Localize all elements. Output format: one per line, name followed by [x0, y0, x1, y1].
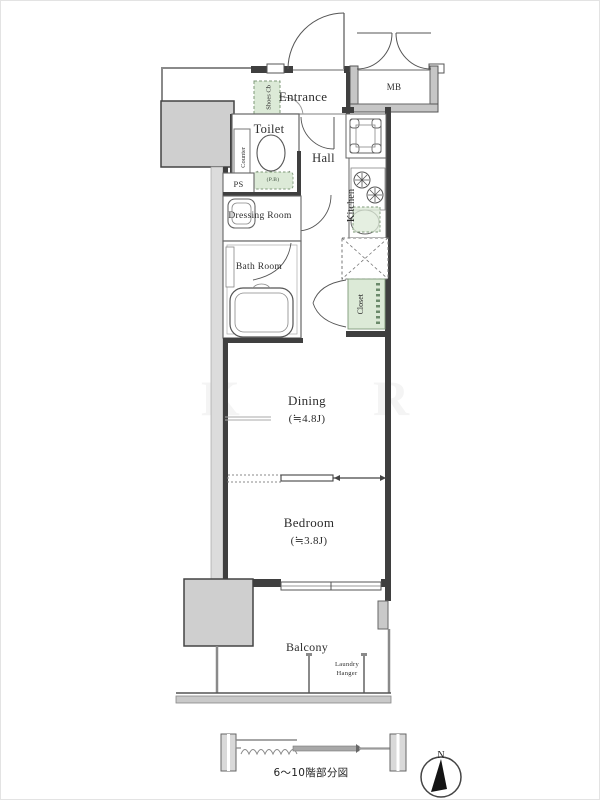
mb-door-arc-right — [396, 33, 431, 69]
hall-door-arc — [297, 195, 331, 231]
pillar-bottom-left — [184, 579, 253, 646]
stove-burner-2-grate — [368, 188, 382, 202]
detail-gray-bar — [293, 746, 359, 751]
toilet-bowl — [257, 135, 285, 171]
floor-plan-canvas: K R — [0, 0, 600, 800]
balcony-label: Balcony — [267, 640, 347, 655]
balcony-wall-stub — [378, 601, 388, 629]
dressing-room-label: Dressing Room — [228, 198, 292, 234]
toilet-pipe-box-label: (P.B) — [253, 174, 293, 187]
washer-pan-foot-bl — [350, 144, 359, 153]
hall-label: Hall — [301, 151, 346, 166]
hall-dressing-wall — [223, 192, 301, 196]
washer-pan-foot-tl — [350, 119, 359, 128]
bathtub — [230, 288, 293, 337]
balcony-railing-bar — [176, 696, 391, 703]
mb-door-arc-left — [357, 33, 392, 69]
partition-sliding-panel — [281, 475, 333, 481]
closet-south-wall — [346, 331, 391, 337]
compass-north-label: N — [437, 750, 444, 761]
partition-hatched — [228, 475, 281, 482]
bedroom-south-wall-left — [253, 579, 281, 587]
mb-label: MB — [374, 80, 414, 94]
detail-step — [236, 740, 241, 748]
stove-burner-1-grate — [355, 173, 369, 187]
kitchen-label: Kitchen — [335, 177, 353, 235]
bath-room-label: Bath Room — [232, 250, 286, 284]
partition-arrow-left — [334, 475, 340, 481]
laundry-hanger-label: Laundry Hanger — [327, 658, 367, 680]
closet-label: Closet — [351, 281, 369, 327]
shoes-cabinet-label: Shoes Cb — [254, 81, 280, 114]
bath-south-wall — [223, 338, 303, 343]
wall-end-cap-left — [267, 64, 284, 73]
washer-pan-foot-tr — [372, 119, 381, 128]
ps-label: PS — [225, 178, 252, 191]
dining-label: Dining — [267, 393, 347, 409]
laundry-pole-top-2 — [361, 653, 367, 656]
washer-pan-foot-br — [372, 144, 381, 153]
pillar-top-left — [161, 101, 234, 167]
entrance-door-arc — [288, 13, 344, 69]
detail-coil-hatch — [241, 750, 297, 755]
dining-size-label: (≒4.8J) — [267, 412, 347, 426]
mb-frame-bottom — [350, 104, 438, 112]
bedroom-size-label: (≒3.8J) — [264, 534, 354, 548]
toilet-door-arc — [301, 117, 334, 149]
bedroom-label: Bedroom — [264, 515, 354, 531]
bedroom-south-wall-right — [381, 579, 391, 587]
west-wall-gray-band — [211, 167, 223, 579]
closet-door-arc-bottom — [313, 303, 346, 327]
closet-door-arc-top — [313, 280, 346, 303]
kitchen-north-wall — [342, 107, 354, 113]
floor-range-caption: 6〜10階部分図 — [246, 766, 376, 781]
